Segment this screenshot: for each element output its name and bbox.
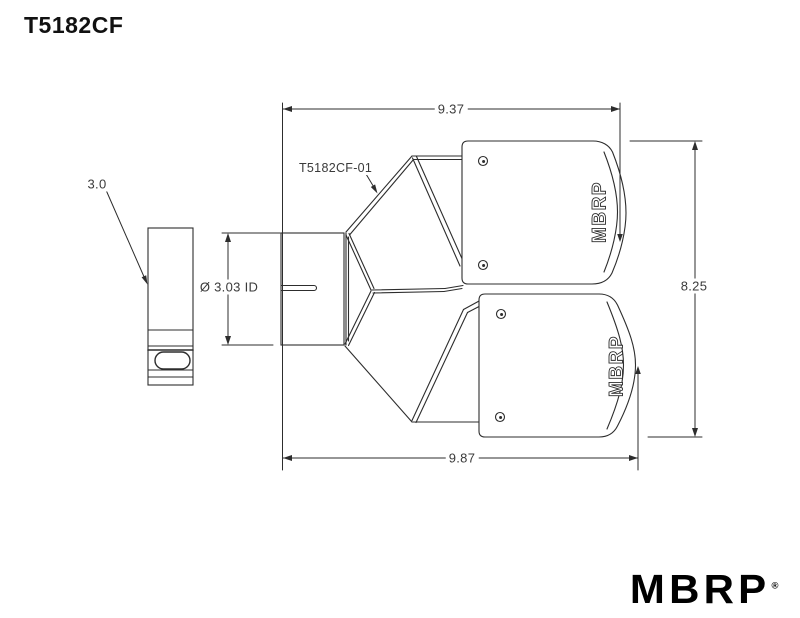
exhaust-tip-drawing: MBRP MBRP [0,0,800,618]
dim-arrow-icon [629,455,638,461]
leader-arrow-icon [142,275,148,284]
leader-arrow-icon [371,184,378,193]
clamp-slot [155,352,190,369]
brand-logo-text: MBRP [630,567,770,612]
dim-inlet-id-label: Ø 3.03 ID [197,280,261,295]
dim-arrow-icon [692,428,698,437]
y-pipe [345,156,480,423]
part-number-label: T5182CF-01 [297,161,374,175]
dim-overall-height-label: 8.25 [678,279,711,294]
inlet-slot [281,286,317,291]
lower-tip: MBRP [479,294,636,437]
leader-part-label [366,174,378,194]
leader-inlet-size [106,190,148,285]
dim-bottom-width-label: 9.87 [446,451,479,466]
dim-arrow-icon [692,141,698,150]
brand-logo: MBRP® [630,569,778,610]
dim-arrow-icon [225,233,231,242]
dim-top-width-label: 9.37 [435,102,468,117]
registered-trademark-icon: ® [771,580,778,590]
inlet-side-view [148,228,193,385]
dim-arrow-icon [225,336,231,345]
technical-drawing-page: T5182CF [0,0,800,618]
upper-tip: MBRP [462,141,626,284]
tangent-arrow-icon [635,366,641,374]
dim-arrow-icon [283,106,292,112]
inlet-front-view [281,233,349,345]
upper-tip-engraving: MBRP [590,181,611,243]
dim-arrow-icon [283,455,292,461]
lower-tip-engraving: MBRP [607,335,628,397]
dim-arrow-icon [611,106,620,112]
dim-inlet-size-label: 3.0 [85,177,110,192]
